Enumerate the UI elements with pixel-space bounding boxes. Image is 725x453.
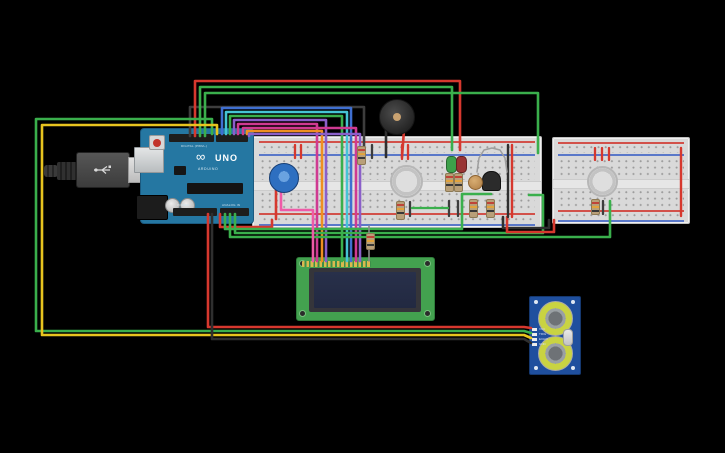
wire-magenta-lcd-b[interactable] — [243, 128, 356, 261]
resistor[interactable] — [486, 199, 495, 218]
led-red[interactable] — [456, 156, 467, 173]
wire-green-analog-a[interactable] — [225, 194, 491, 229]
resistor[interactable] — [396, 201, 405, 220]
wire-magenta-lcd-a[interactable] — [238, 124, 317, 261]
wire-red-right-feed[interactable] — [507, 217, 554, 232]
wire-green-echo[interactable] — [36, 119, 531, 333]
wire-gray-arc-transistor[interactable] — [477, 148, 507, 172]
gas-sensor-main[interactable] — [390, 165, 423, 198]
wire-pink-pot-lcd[interactable] — [281, 188, 313, 261]
wire-orange-lcd[interactable] — [247, 131, 322, 261]
potentiometer[interactable] — [269, 163, 299, 193]
wire-purple-lcd-b[interactable] — [249, 134, 360, 261]
wire-red-rail-feed[interactable] — [220, 214, 272, 227]
resistor[interactable] — [366, 233, 375, 250]
resistor[interactable] — [454, 173, 463, 192]
resistor[interactable] — [591, 199, 600, 215]
circuit-canvas: DIGITAL (PWM~) ∞ UNO ARDUINO POWER ANALO… — [0, 0, 725, 453]
wire-layer — [0, 0, 725, 453]
gas-sensor-right[interactable] — [587, 166, 618, 197]
resistor[interactable] — [357, 146, 366, 165]
transistor[interactable] — [482, 171, 501, 191]
piezo-buzzer[interactable] — [379, 99, 415, 135]
ceramic-capacitor[interactable] — [468, 175, 483, 190]
resistor[interactable] — [469, 199, 478, 218]
resistor[interactable] — [445, 173, 454, 192]
